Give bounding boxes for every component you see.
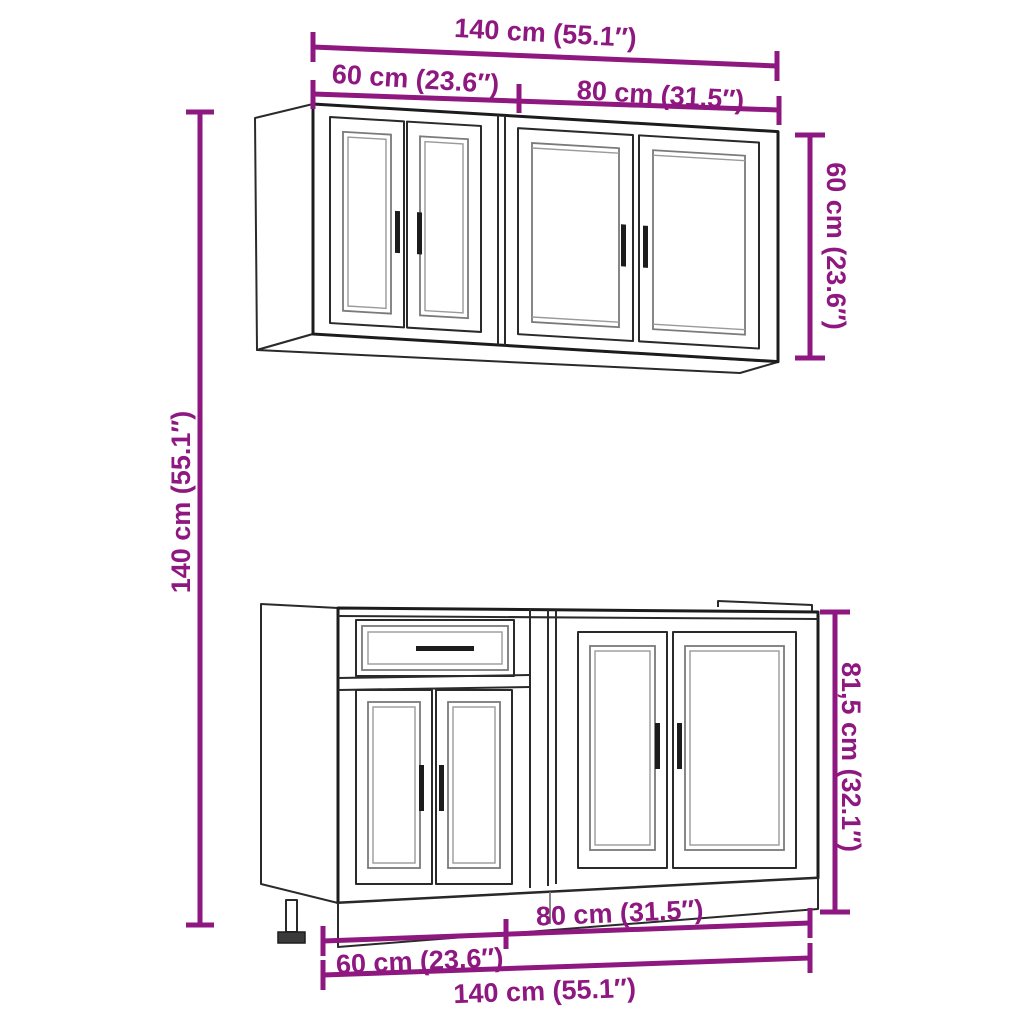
countertop-edge xyxy=(718,601,812,611)
wall-right-door-2 xyxy=(639,135,759,348)
dimension-diagram-page: 140 cm (55.1″) 60 cm (23.6″) 80 cm (31.5… xyxy=(0,0,1024,1024)
cabinet-dimension-diagram: 140 cm (55.1″) 60 cm (23.6″) 80 cm (31.5… xyxy=(0,0,1024,1024)
door-handle xyxy=(395,211,400,253)
door-handle xyxy=(621,224,626,266)
drawer-handle xyxy=(416,646,474,651)
wall-left-door-1 xyxy=(330,117,404,327)
base-cabinet-drawing xyxy=(261,601,818,947)
base-right-door-1 xyxy=(578,632,667,868)
wall-right-door-1 xyxy=(518,128,633,341)
door-handle xyxy=(677,723,682,769)
base-right-door-2 xyxy=(673,632,796,868)
dim-base-height: 81,5 cm (32.1″) xyxy=(820,612,866,912)
door-handle xyxy=(419,765,424,811)
door-handle xyxy=(655,723,660,769)
dim-label-overall-height: 140 cm (55.1″) xyxy=(166,411,196,594)
wall-cabinet-drawing xyxy=(255,104,778,373)
dim-label-wall-right-width: 80 cm (31.5″) xyxy=(576,75,745,115)
cabinet-foot xyxy=(278,932,305,943)
door-handle xyxy=(417,212,422,254)
base-cabinet-side-panel xyxy=(261,604,338,903)
door-handle xyxy=(643,226,648,268)
cabinet-leg xyxy=(286,900,297,932)
dim-wall-height: 60 cm (23.6″) xyxy=(795,135,851,358)
dim-label-base-height: 81,5 cm (32.1″) xyxy=(836,662,866,852)
dim-label-base-total-width: 140 cm (55.1″) xyxy=(453,973,636,1009)
door-handle xyxy=(439,765,444,811)
wall-cabinet-side-panel xyxy=(255,104,313,350)
dim-label-wall-total-width: 140 cm (55.1″) xyxy=(454,13,638,53)
wall-cabinet-front xyxy=(313,104,778,362)
dim-overall-height: 140 cm (55.1″) xyxy=(166,112,214,925)
dim-label-wall-height: 60 cm (23.6″) xyxy=(821,162,851,330)
